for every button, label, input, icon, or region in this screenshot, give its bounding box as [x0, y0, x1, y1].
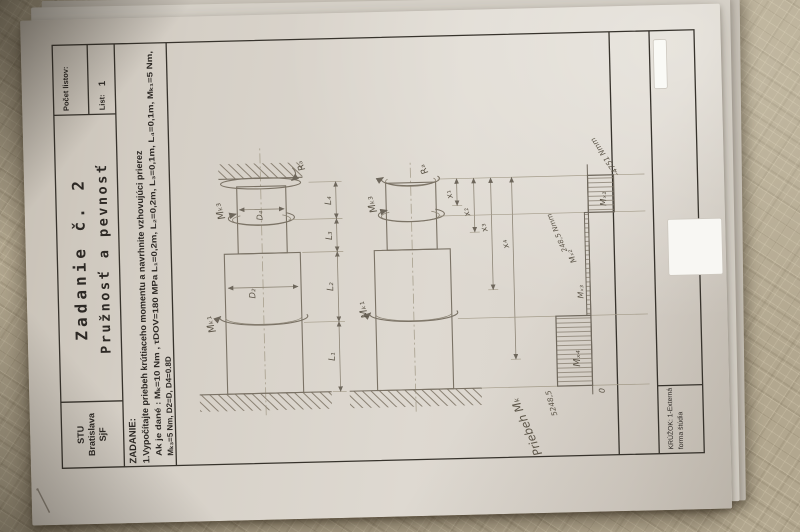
- top-sheet: STU Bratislava SjF Zadanie č. 2 Pružnosť…: [20, 4, 732, 526]
- figure-shaft-1: Mₖ₁ Mₖ₃ Rₐ D₂ D₄ L₁ L₂ L₃ L₄: [193, 144, 347, 417]
- label-x1: x₁: [443, 188, 456, 200]
- wall-hatching-right: [218, 162, 302, 179]
- label-mx1: Mₓ₁: [598, 191, 608, 206]
- sheet-value: 1: [96, 80, 107, 86]
- redaction-sticker-name: [667, 218, 722, 275]
- label-l2: L₂: [325, 281, 335, 290]
- x-dimension-lines: [456, 177, 515, 360]
- label-l4: L₄: [323, 195, 333, 204]
- redactions: [653, 38, 723, 275]
- redaction-sticker-field: [653, 39, 667, 88]
- mx2-value: 248,5 Nmm: [545, 212, 569, 253]
- label-l1: L₁: [327, 351, 337, 360]
- title-block: STU Bratislava SjF Zadanie č. 2 Pružnosť…: [60, 65, 117, 456]
- label-mx3: Mₓ₃: [576, 284, 585, 298]
- mk1-coil: [225, 316, 301, 325]
- label-l3: L₃: [324, 230, 334, 239]
- assignment-heading: ZADANIE:: [127, 418, 139, 464]
- label-ra-fig2: Rₐ: [417, 161, 431, 175]
- pencil-mark: [36, 487, 49, 512]
- label-mk1-fig1: Mₖ₁: [203, 314, 219, 334]
- torque-diagram: Priebeh Mₖ 5248,5 0 Mₓ₄ Mₓ₃ Mₓ₂ 248,5 Nm…: [501, 135, 628, 458]
- ra-loop-arrow: [381, 176, 439, 186]
- kruzok-line2: forma štúdia: [677, 411, 685, 449]
- label-mk3-fig1: Mₖ₃: [212, 201, 228, 221]
- diagram-title: Priebeh Mₖ: [507, 395, 545, 458]
- diagram-min-value: -4751 Nmm: [588, 135, 621, 177]
- label-mx4: Mₓ₄: [571, 350, 582, 367]
- kruzok-line1: KRÚŽOK: 1-Externá: [664, 387, 675, 449]
- diagram-max-value: 5248,5: [543, 389, 559, 417]
- label-x4: x₄: [499, 237, 512, 250]
- org-faculty: SjF: [97, 426, 107, 441]
- label-mk3-fig2: Mₖ₃: [364, 194, 380, 214]
- photo-of-assignment-sheet: STU Bratislava SjF Zadanie č. 2 Pružnosť…: [0, 0, 800, 532]
- document-content: STU Bratislava SjF Zadanie č. 2 Pružnosť…: [20, 4, 732, 526]
- sheet-label: List:: [97, 94, 106, 110]
- sheet-count-label: Počet listov:: [60, 66, 70, 111]
- label-d4: D₄: [255, 210, 264, 220]
- document: STU Bratislava SjF Zadanie č. 2 Pružnosť…: [20, 4, 732, 526]
- org-name: STU: [75, 425, 85, 443]
- paper-stack: STU Bratislava SjF Zadanie č. 2 Pružnosť…: [20, 0, 738, 525]
- diagram-zero: 0: [597, 387, 606, 392]
- x-extension-line: [437, 177, 516, 179]
- assignment-text: ZADANIE: 1.Vypočítajte priebeh krútiaceh…: [118, 50, 175, 463]
- doc-title-line2: Pružnosť a pevnosť: [94, 162, 115, 354]
- torque-bar-mx3-mx2: [584, 212, 591, 315]
- label-d2: D₂: [248, 287, 258, 298]
- centerline: [410, 160, 416, 411]
- mk1-coil: [375, 312, 451, 321]
- assignment-given2: Mₖ₃=5 Nm, D2=D, D4=0.8D: [163, 355, 174, 455]
- kruzok-box: KRÚŽOK: 1-Externá forma štúdia: [664, 387, 685, 449]
- doc-title-line1: Zadanie č. 2: [68, 176, 91, 340]
- label-mk1-fig2: Mₖ₁: [355, 299, 371, 319]
- org-city: Bratislava: [86, 411, 97, 455]
- d2-dimension: [228, 286, 298, 288]
- label-x2: x₂: [460, 205, 473, 218]
